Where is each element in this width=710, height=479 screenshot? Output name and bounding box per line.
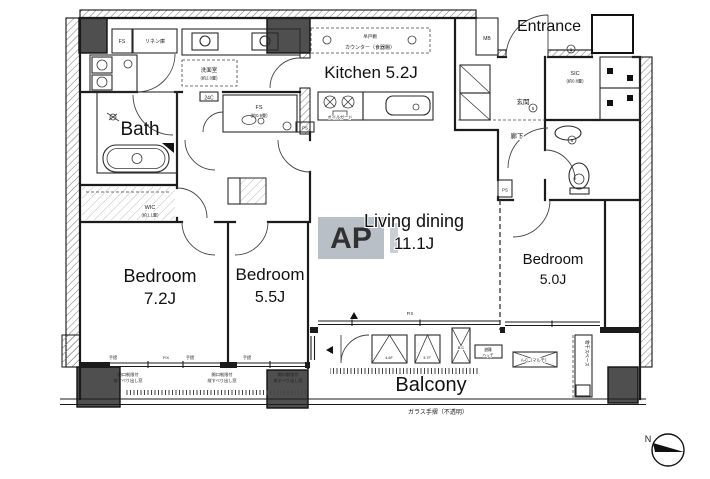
window-note: 開口制限付 縦すべり出し窓: [113, 371, 142, 384]
label-hallway: 廊下: [511, 131, 525, 140]
walk-in-closet: [82, 187, 175, 220]
hall-closet: [240, 178, 266, 204]
label-escape-hatch: ハッチ: [482, 353, 494, 358]
washing-machine: [90, 55, 137, 92]
label-ac-space-2: 3.7F: [423, 356, 431, 360]
hall-shaft: [228, 178, 240, 204]
label-wic-size: (約1.1畳): [142, 212, 160, 219]
label-handrail: 手摺: [109, 354, 117, 360]
label-fs-room-size: (約0.9畳): [251, 112, 269, 119]
svg-text:5: 5: [571, 138, 574, 143]
label-washroom: 洗面室: [201, 66, 218, 74]
label-ac-space-3: B-C: [458, 346, 465, 350]
label-sic: SIC: [570, 71, 579, 77]
label-ps-hall: PS: [502, 188, 508, 193]
shower-icon: [107, 113, 119, 121]
room-label-living: Living dining: [364, 211, 464, 231]
kitchen-sink: [363, 92, 433, 120]
room-size-bedroom-7-2: 7.2J: [144, 289, 176, 308]
label-sic-size: (約0.8畳): [567, 78, 585, 85]
room-label-kitchen: Kitchen 5.2J: [324, 63, 418, 82]
label-fs-room: FS: [255, 105, 262, 111]
label-ps-kitchen: PS: [302, 126, 308, 131]
label-fix-bedroom: FIX: [163, 355, 170, 360]
svg-text:縦すべり出し窓: 縦すべり出し窓: [113, 377, 142, 384]
label-genkan: 玄関: [517, 97, 530, 106]
floor-plan-drawing: 1 5 5 AP Entrance Kitchen 5.2J Bath: [0, 0, 710, 479]
room-label-bedroom-5-0: Bedroom: [523, 251, 584, 268]
balcony-deck-strip: [125, 390, 308, 395]
label-mb: MB: [483, 36, 491, 42]
window-note: 開口制限付 縦すべり出し窓: [207, 371, 236, 384]
sic-closets: [600, 57, 640, 120]
room-size-bedroom-5-5: 5.5J: [255, 289, 285, 306]
label-fix-living: FIX: [407, 311, 414, 316]
label-oil-guard: オイルガード: [328, 114, 353, 121]
note-markers: 1 5 5: [529, 45, 576, 144]
room-size-bedroom-5-0: 5.0J: [540, 271, 566, 287]
window-note: 開口制限付 縦すべり出し窓: [273, 371, 302, 384]
hinge-marker-icon: [350, 312, 358, 319]
bathtub: [103, 145, 169, 172]
room-label-balcony: Balcony: [395, 374, 466, 396]
label-glass-rail: ガラス手摺（不透明）: [408, 408, 468, 416]
room-label-bedroom-5-5: Bedroom: [236, 265, 305, 284]
svg-text:開口制限付: 開口制限付: [212, 371, 233, 378]
svg-text:開口制限付: 開口制限付: [118, 371, 139, 378]
label-linen: リネン庫: [145, 38, 165, 45]
room-size-living: 11.1J: [394, 234, 434, 253]
svg-text:5: 5: [532, 106, 535, 111]
toilet-sink: [555, 126, 581, 140]
svg-text:開口制限付: 開口制限付: [278, 371, 299, 378]
hinge-marker-icon: [326, 346, 333, 354]
room-label-bath: Bath: [120, 119, 159, 140]
room-labels: Entrance Kitchen 5.2J Bath Living dining…: [120, 18, 583, 396]
compass-icon: N: [645, 434, 684, 466]
label-ac-space-1: 4.6F: [385, 356, 393, 360]
label-handrail: 手摺: [186, 354, 194, 360]
label-counter-cupboard: カウンター（食器棚）: [345, 44, 395, 51]
label-hanging-cupboard: 吊戸棚: [363, 33, 377, 40]
room-label-entrance: Entrance: [517, 18, 581, 35]
room-label-bedroom-7-2: Bedroom: [123, 266, 196, 286]
label-vent-24c: 24C: [204, 96, 214, 102]
label-washroom-size: (約2.0畳): [201, 75, 219, 82]
label-wic: WIC: [145, 205, 156, 211]
label-escape-hatch: 避難: [484, 347, 492, 352]
svg-text:縦すべり出し窓: 縦すべり出し窓: [207, 377, 236, 384]
svg-text:縦すべり出し窓: 縦すべり出し窓: [273, 377, 302, 384]
label-handrail: 手摺: [243, 354, 251, 360]
balcony-railing: [60, 399, 646, 405]
label-laundry-space: 物干スペース: [584, 340, 591, 367]
floor-plan: 1 5 5 AP Entrance Kitchen 5.2J Bath: [0, 0, 710, 479]
label-fs-shaft: FS: [119, 39, 126, 45]
compass-north-label: N: [645, 434, 652, 444]
